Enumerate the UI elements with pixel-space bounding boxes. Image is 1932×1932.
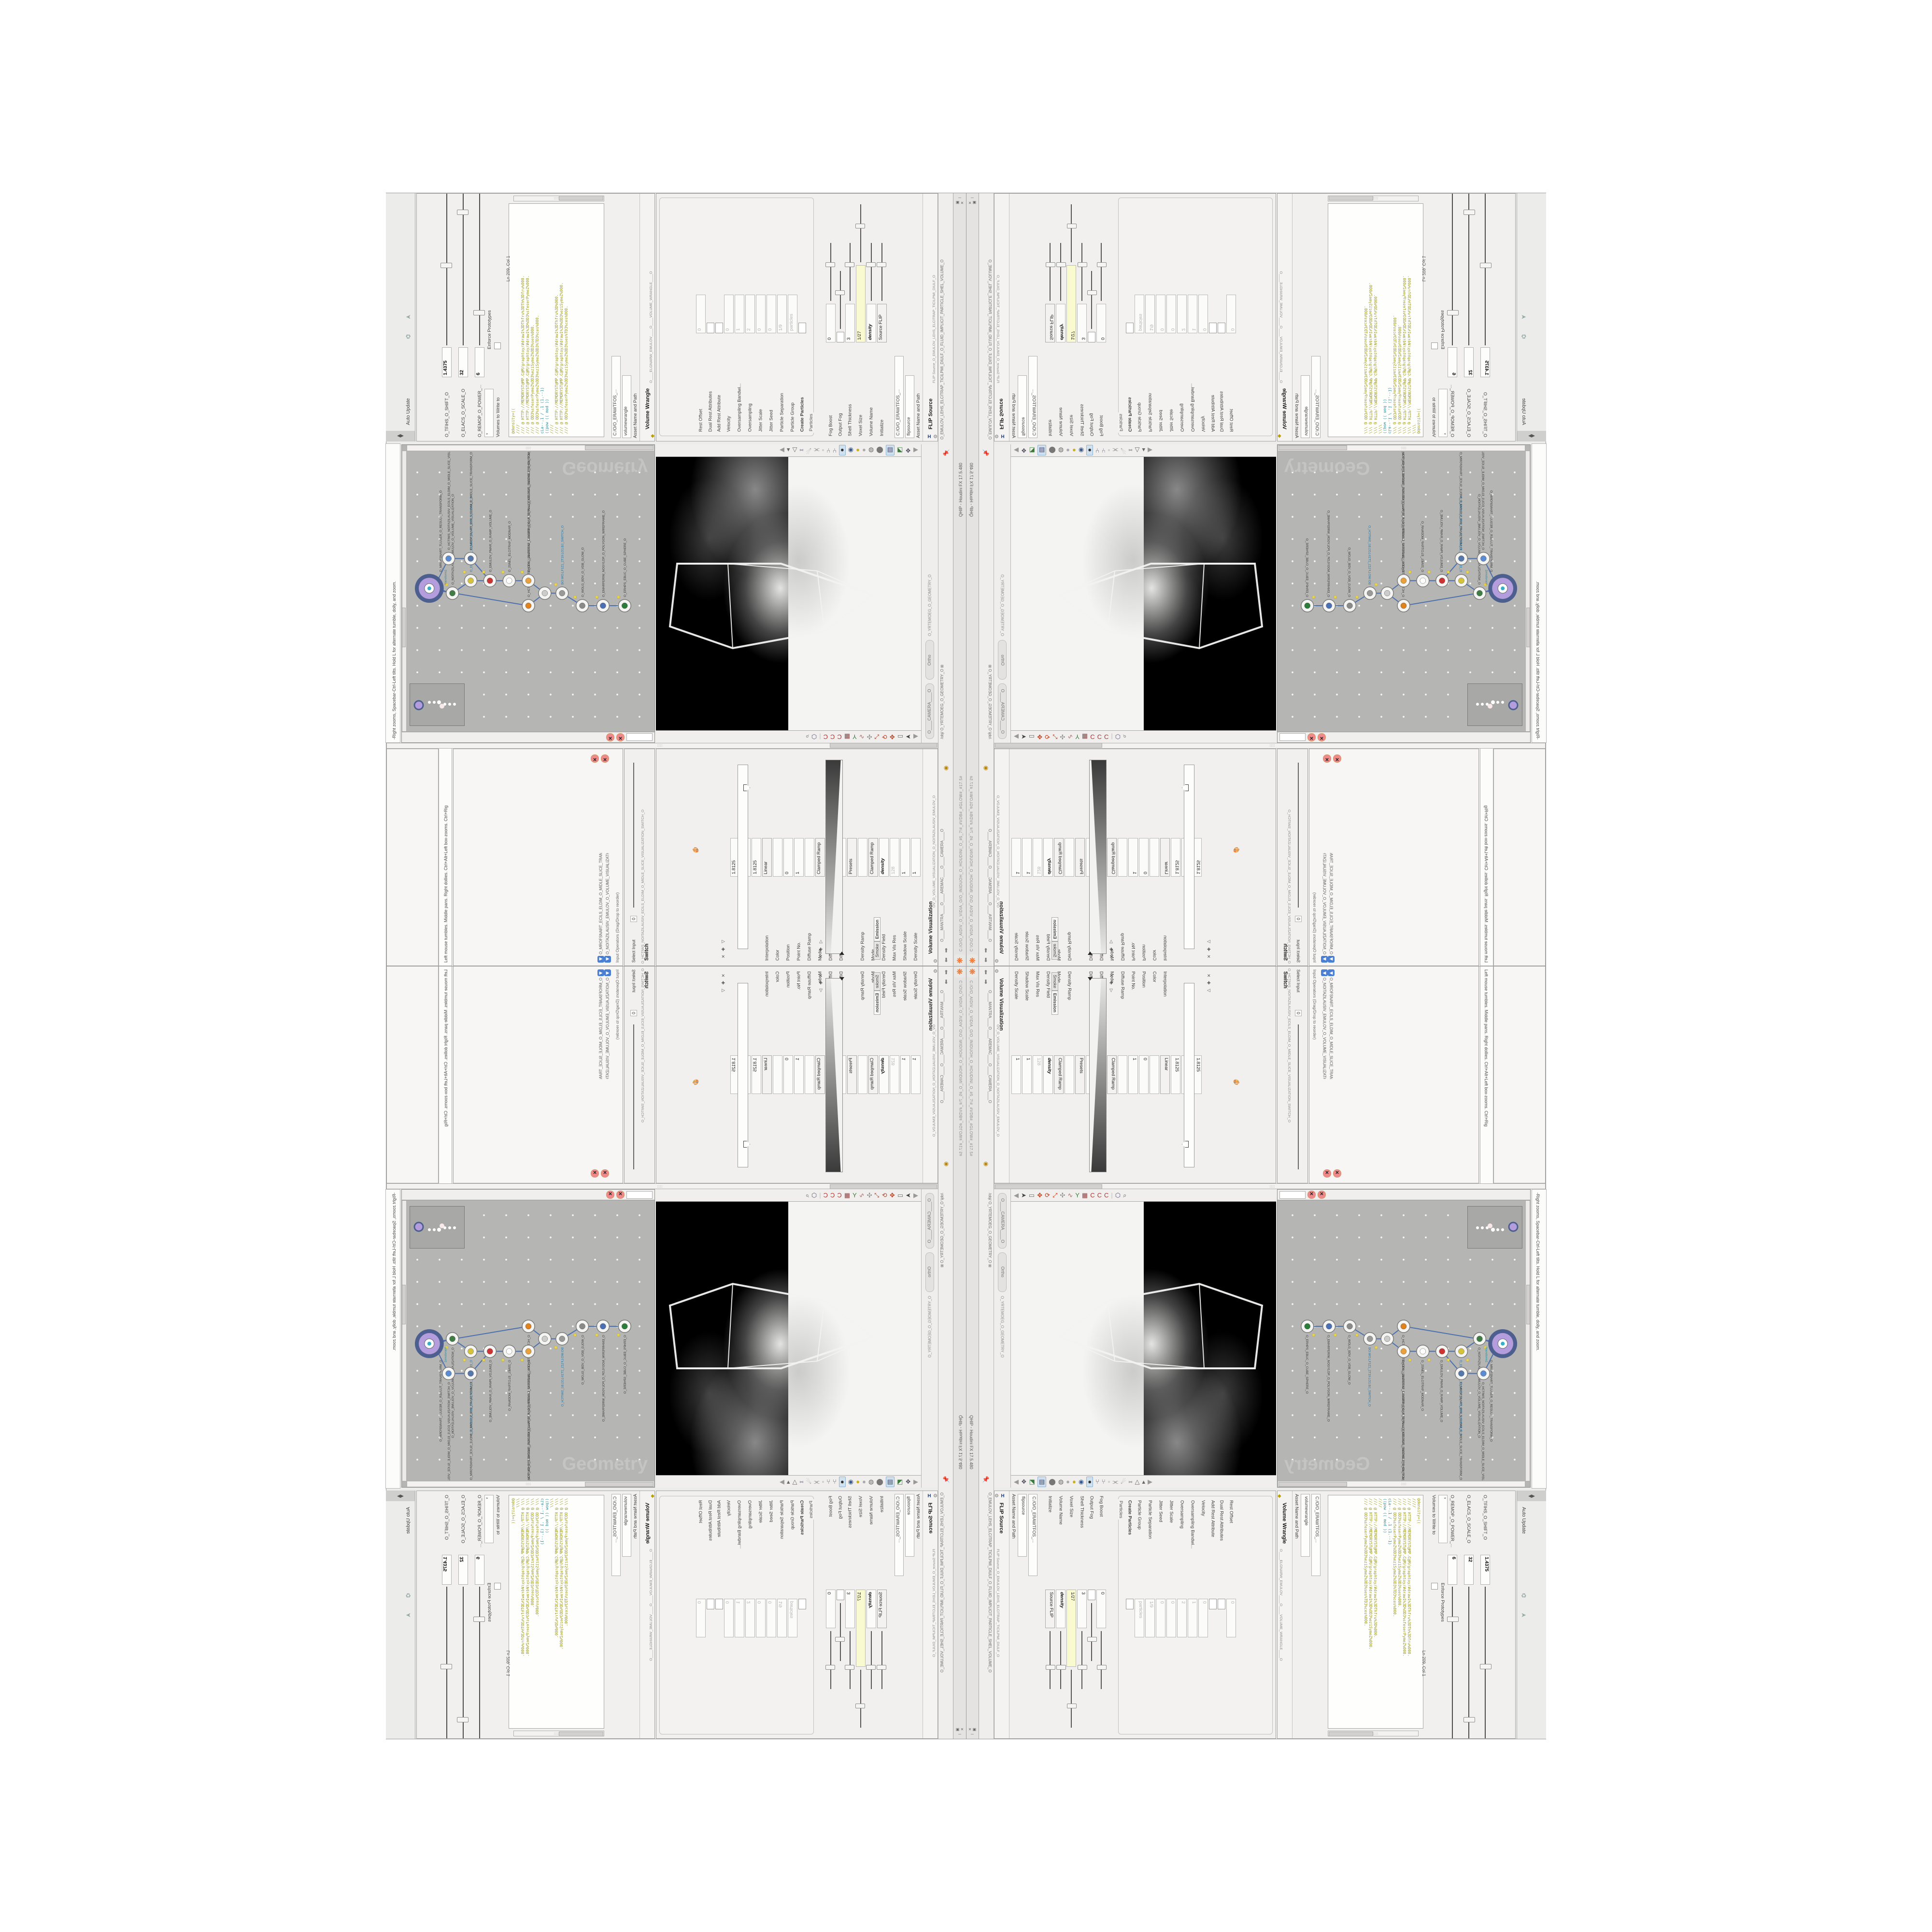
param-value[interactable]: 0	[1226, 295, 1236, 333]
param-value[interactable]: 1	[900, 838, 910, 877]
scene-viewport[interactable]: ◀➤▭✥⟳⤢✣∿Y▦CCC|⬡⌕ ◀❖⬔▤⬤◍●●◉●⑂⑂◦⫘☄⑅△▴▶	[656, 1189, 921, 1488]
param-value[interactable]: Clamped Ramp	[868, 1055, 878, 1094]
lock-camera-icon[interactable]: ▤	[886, 1477, 895, 1487]
particle-param[interactable]: Rest Offset 0	[1226, 295, 1236, 435]
scrollbar-grip[interactable]: ∷∷	[657, 1185, 662, 1189]
wrangle-slider[interactable]: O_REMOP_O_POWER_... 6	[1448, 193, 1457, 437]
slider-value[interactable]: 32	[1464, 1555, 1474, 1585]
volumes-to-write-field[interactable]: *	[484, 389, 494, 437]
spray-icon[interactable]: ⑂	[833, 446, 837, 455]
vv-param[interactable]: Point No. 1	[794, 838, 804, 964]
param-value[interactable]	[707, 1599, 714, 1609]
particle-param[interactable]: Jitter Scale 0	[756, 1497, 766, 1637]
param-slider[interactable]	[830, 243, 831, 301]
tab-band1-label[interactable]: O____MANTRA____O____AREMAC____O____CAMER…	[940, 990, 952, 1154]
wrangle-slider[interactable]: O_ELACS_O_SCALE_O 32	[1464, 193, 1474, 437]
color-wheel-icon[interactable]: 🎨	[1233, 847, 1240, 853]
param-value[interactable]: 1	[1128, 838, 1138, 877]
diffuse-ramp-widget[interactable]	[1184, 765, 1194, 949]
vv-param[interactable]: Density Scale 1	[1011, 838, 1021, 964]
select-input-value[interactable]: 0	[1295, 916, 1302, 922]
flip-path-field[interactable]: C:/O/O_ERAWTFOS_...	[1028, 1494, 1037, 1576]
vv-pane-path[interactable]: OV_O_VOLUME_VISUALIZATION_O_NOITAZILAUSI…	[996, 756, 1000, 908]
vv-param[interactable]: Max Vis Res 128	[1033, 968, 1042, 1094]
param-value[interactable]: 1	[1188, 295, 1197, 333]
switch-path[interactable]: O_HCTIWS_NOITAZILAUSIV_ECILS_ELDIM_O_MID…	[640, 968, 645, 1181]
particle-param[interactable]: Jitter Seed 0	[767, 1497, 776, 1637]
param-value[interactable]: Clamped Ramp	[1054, 1055, 1064, 1094]
slider-value[interactable]: 1.4375	[1480, 1555, 1490, 1585]
wrangle-slider[interactable]: O_REMOP_O_POWER_... 6	[475, 193, 484, 437]
diffuse-ramp-marker[interactable]	[1182, 784, 1189, 791]
lamp-selected-icon[interactable]: ◉	[1079, 446, 1084, 455]
network-path-field[interactable]	[1279, 1191, 1306, 1199]
slider-value[interactable]: 6	[1448, 347, 1457, 377]
param-value[interactable]: 128	[890, 1055, 899, 1094]
param-value[interactable]: 1	[1011, 838, 1021, 877]
close-tab-icon[interactable]: ✕	[606, 1191, 614, 1199]
balloons-icon[interactable]: ⑅	[800, 446, 804, 455]
particle-param[interactable]: Jitter Seed 0	[1156, 295, 1165, 435]
cone-icon[interactable]: △	[793, 446, 797, 455]
particle-param[interactable]: Create Particles	[798, 323, 806, 435]
switch-input-row[interactable]: ◀ O_MROFSNART_ECILS_ELDIM_O_MIDLE_SLICE_…	[597, 853, 604, 963]
smoke-emission-tabs[interactable]: Smoke Emission	[874, 917, 881, 960]
flip-param[interactable]: Fog Boost 0	[1096, 243, 1106, 439]
param-value[interactable]: 1/27	[1066, 1590, 1076, 1667]
param-value[interactable]: 0	[1166, 295, 1176, 333]
vv-pane-path[interactable]: OV_O_VOLUME_VISUALIZATION_O_NOITAZILAUSI…	[996, 1024, 1000, 1176]
slider-track[interactable]	[463, 193, 464, 345]
tab-band1-label[interactable]: O____MANTRA____O____AREMAC____O____CAMER…	[980, 990, 992, 1154]
slider-track[interactable]	[446, 1587, 447, 1739]
param-value[interactable]: Source FLIP	[877, 304, 887, 342]
param-value[interactable]: particles	[1135, 1599, 1144, 1637]
param-value[interactable]	[798, 1599, 806, 1609]
particle-param[interactable]: Jitter Scale 0	[756, 295, 766, 435]
reorder-icon[interactable]: ◀	[597, 956, 604, 963]
down-arrow-icon[interactable]: ⬇	[942, 978, 951, 986]
vv-param[interactable]: Shadow Scale 1	[1022, 968, 1032, 1094]
wrangle-slider[interactable]: O_REMOP_O_POWER_... 6	[1448, 1495, 1457, 1739]
magnet-icon[interactable]: C	[837, 732, 841, 742]
param-value[interactable]: 0	[1166, 1599, 1176, 1637]
flip-path-field[interactable]: C:/O/O_ERAWTFOS_...	[895, 1494, 904, 1576]
delete-point-icon[interactable]: ✕	[721, 953, 725, 959]
code-hscrollbar[interactable]: ∷∷	[1328, 196, 1419, 201]
param-value[interactable]: 0	[1139, 1055, 1149, 1094]
ramp-flip-icon[interactable]: ▽	[1109, 939, 1113, 944]
translate-icon[interactable]: ✥	[1037, 1191, 1042, 1200]
viewport-toolbar-bottom[interactable]: ◀❖⬔▤⬤◍●●◉●⑂⑂◦⫘☄⑅△▴▶	[656, 444, 921, 457]
window-buttons[interactable]: ✕ ▣ ─	[968, 1727, 977, 1737]
network-editor[interactable]: ✕ ✕ Geometry O_ERHPS_EBUC_O_CUBE_SPHERE_…	[401, 1189, 655, 1488]
param-value[interactable]: 0	[1198, 295, 1208, 333]
cone-icon[interactable]: △	[1135, 446, 1139, 455]
up-arrow-icon[interactable]: ⬆	[942, 968, 951, 977]
flip-param[interactable]: Shell Thickness 3	[845, 243, 855, 439]
recycle-icon[interactable]: ♻	[1521, 1592, 1527, 1600]
lamp-selected-icon[interactable]: ◉	[1079, 1477, 1084, 1487]
flip-param[interactable]: Volume Name density	[1056, 243, 1065, 439]
vv-param[interactable]: Presets	[1075, 838, 1085, 964]
slider-value[interactable]: 6	[475, 1555, 484, 1585]
density-ramp-widget[interactable]	[1089, 978, 1107, 1172]
vex-code-editor[interactable]: @density=((/////// @ HTTP://MEMORYST@MP.…	[509, 1495, 604, 1729]
ramp-buttons[interactable]: ✕ ✚ ▽	[819, 973, 823, 993]
delete-point-icon[interactable]: ✕	[819, 953, 823, 959]
auto-update-button[interactable]: Auto Update	[406, 1507, 411, 1534]
param-slider[interactable]	[1101, 243, 1102, 301]
param-value[interactable]	[1065, 1055, 1074, 1094]
tab-band1-label[interactable]: O____MANTRA____O____AREMAC____O____CAMER…	[980, 778, 992, 942]
vv-param[interactable]: Interpolation Linear	[762, 968, 772, 1094]
lamp-selected-icon[interactable]: ◉	[848, 1477, 853, 1487]
render-flipbook-icon[interactable]: ⬡	[811, 1191, 817, 1200]
add-point-icon[interactable]: ✚	[721, 946, 725, 952]
magnet-icon[interactable]: C	[1104, 1191, 1108, 1200]
input-delete-buttons[interactable]: ✕ ✕	[591, 1169, 609, 1178]
tab-band2-label[interactable]: /obj/ O_YRTEMOEG_O_GEOMETRY_O ⊞	[980, 1193, 992, 1463]
param-value[interactable]: 1.8125	[752, 838, 761, 877]
flip-param[interactable]: Voxel Size 1/27	[856, 1493, 866, 1728]
select-cursor-icon[interactable]: ➤	[1021, 1191, 1026, 1200]
network-hscrollbar[interactable]: ∷∷	[1278, 445, 1525, 451]
ramp-arrow-icon[interactable]: ◁	[721, 939, 725, 944]
param-value[interactable]	[707, 323, 714, 333]
code-hscrollbar[interactable]: ∷∷	[513, 1731, 604, 1736]
ramp-arrow-icon[interactable]: ◁	[1207, 939, 1211, 944]
tab-band2-label[interactable]: /obj/ O_YRTEMOEG_O_GEOMETRY_O ⊞	[940, 1193, 952, 1463]
spray2-icon[interactable]: ⑂	[826, 446, 830, 455]
cone-icon[interactable]: △	[1135, 1477, 1139, 1487]
particle-param[interactable]: Add Rest Attribute	[715, 1497, 723, 1609]
viewport-toolbar-top[interactable]: ◀➤▭✥⟳⤢✣∿Y▦CCC|⬡⌕	[1011, 730, 1276, 743]
param-value[interactable]: Clamped Ramp	[868, 838, 878, 877]
key-icon[interactable]: ⫘	[814, 446, 820, 455]
param-value[interactable]: 0	[1226, 1599, 1236, 1637]
slider-track[interactable]	[479, 1587, 480, 1739]
viewport-canvas[interactable]	[1011, 1202, 1276, 1475]
grid-snap-icon[interactable]: ▦	[1082, 1191, 1088, 1200]
snap-axis-icon[interactable]: Y	[1075, 1191, 1080, 1200]
flip-param[interactable]: Fog Boost 0	[826, 1493, 836, 1689]
select-input-value[interactable]: 0	[1295, 1010, 1302, 1016]
cone-flag-icon[interactable]: ▴	[1142, 1477, 1145, 1487]
param-value[interactable]: Clamped Ramp	[815, 838, 825, 877]
select-cursor-icon[interactable]: ➤	[1021, 732, 1026, 742]
vv-param[interactable]: Presets	[1075, 968, 1085, 1094]
box-select-icon[interactable]: ▭	[897, 1191, 903, 1200]
gear-icon[interactable]: ⚙	[994, 433, 999, 439]
delete-point-icon[interactable]: ✕	[1109, 953, 1113, 959]
slider-value[interactable]: 6	[475, 347, 484, 377]
slider-value[interactable]: 1.4375	[442, 1555, 452, 1585]
flip-param[interactable]: Initialize Source FLIP	[877, 1493, 887, 1689]
flip-path-field[interactable]: C:/O/O_ERAWTFOS_...	[895, 356, 904, 438]
param-value[interactable]: 1	[900, 1055, 910, 1094]
add-point-icon[interactable]: ✚	[819, 980, 823, 986]
pose-icon[interactable]: ∿	[1067, 1191, 1073, 1200]
translate-icon[interactable]: ✥	[1037, 732, 1042, 742]
reorder-icon[interactable]: ◀	[597, 969, 604, 976]
particle-param[interactable]: Add Rest Attribute	[1209, 1497, 1217, 1609]
reorder-icon[interactable]: ◀	[1328, 969, 1335, 976]
vv-param[interactable]: Position 0	[1139, 968, 1149, 1094]
bulb-yellow-icon[interactable]: ●	[1072, 446, 1076, 455]
param-value[interactable]: 1	[911, 1055, 921, 1094]
wrangle-asset-field[interactable]: volumewrangle	[622, 375, 631, 438]
switch-input-row[interactable]: ◀ O_NOITAZILAUSIV_EMULOV_O_VOLUME_VISUAL…	[1321, 969, 1328, 1079]
particle-param[interactable]: Oversampling Bandwi... 1	[735, 295, 744, 435]
param-value[interactable]: 1	[911, 838, 921, 877]
network-nav-inset[interactable]	[410, 683, 465, 726]
box-select-icon[interactable]: ▭	[1029, 1191, 1035, 1200]
param-slider[interactable]	[1071, 204, 1072, 262]
particle-param[interactable]: Oversampling 2	[1177, 295, 1187, 435]
flip-param[interactable]: Initialize Source FLIP	[877, 243, 887, 439]
wrangle-asset-field[interactable]: volumewrangle	[1301, 375, 1310, 438]
balloons-icon[interactable]: ⑅	[800, 1477, 804, 1487]
scrollbar-thumb[interactable]	[830, 743, 937, 748]
param-value[interactable]: density	[1056, 304, 1065, 342]
param-value[interactable]: 0	[1139, 838, 1149, 877]
vv-param[interactable]: Density Ramp	[858, 968, 867, 1094]
switch-path[interactable]: O_HCTIWS_NOITAZILAUSIV_ECILS_ELDIM_O_MID…	[1287, 751, 1292, 964]
slider-value[interactable]: 32	[1464, 347, 1474, 377]
param-value[interactable]: 1	[1011, 1055, 1021, 1094]
param-value[interactable]: Clamped Ramp	[1054, 838, 1064, 877]
viewport-toolbar-bottom[interactable]: ◀❖⬔▤⬤◍●●◉●⑂⑂◦⫘☄⑅△▴▶	[1011, 444, 1276, 457]
wrangle-slider[interactable]: O_TFIHS_O_SHIFT_O 1.4375	[442, 1495, 452, 1739]
bulb-yellow-icon[interactable]: ●	[856, 446, 860, 455]
network-hscrollbar[interactable]: ∷∷	[1278, 1481, 1525, 1487]
switch-input-row[interactable]: ◀ O_MROFSNART_ECILS_ELDIM_O_MIDLE_SLICE_…	[1328, 969, 1335, 1079]
magnify-icon[interactable]: ◍	[868, 1477, 874, 1487]
network-editor[interactable]: ✕ ✕ Geometry O_ERHPS_EBUC_O_CUBE_SPHERE_…	[1277, 1189, 1531, 1488]
switch-input-row[interactable]: ◀ O_NOITAZILAUSIV_EMULOV_O_VOLUME_VISUAL…	[604, 969, 611, 1079]
switch-input-row[interactable]: ◀ O_NOITAZILAUSIV_EMULOV_O_VOLUME_VISUAL…	[604, 853, 611, 963]
particle-param[interactable]: Create Particles	[798, 1497, 806, 1609]
particle-param[interactable]: Jitter Scale 0	[1166, 295, 1176, 435]
param-value[interactable]: 128	[1033, 838, 1042, 877]
reorder-icon[interactable]: ◀	[604, 956, 611, 963]
ortho-pill[interactable]: Ortho	[925, 640, 934, 680]
flip-param[interactable]: Output Fog	[1088, 1493, 1095, 1661]
wrangle-pane-path[interactable]: O____ELGNARW_EMULOV____O____VOLUME_WRANG…	[649, 210, 653, 383]
slider-track[interactable]	[1485, 193, 1486, 345]
rotate-icon[interactable]: ⟳	[1045, 732, 1050, 742]
pose-icon[interactable]: ∿	[1067, 732, 1073, 742]
particle-param[interactable]: Particle Separation 1/9	[777, 1497, 787, 1637]
enforce-prototypes-checkbox[interactable]	[1431, 342, 1438, 349]
param-value[interactable]: 128	[890, 838, 899, 877]
diffuse-ramp-widget[interactable]	[738, 765, 748, 949]
camera-pill[interactable]: O____CAMERA____O	[925, 1193, 934, 1249]
select-input-value[interactable]: 0	[630, 916, 637, 922]
particle-param[interactable]: Dual Rest Attributes	[707, 323, 714, 435]
param-value[interactable]: 2	[1177, 295, 1187, 333]
auto-update-button[interactable]: Auto Update	[1521, 1507, 1526, 1534]
close-tab-icon[interactable]: ✕	[616, 1191, 625, 1199]
viewport-canvas[interactable]	[1011, 457, 1276, 730]
param-value[interactable]	[773, 1055, 782, 1094]
spray2-icon[interactable]: ⑂	[1102, 1477, 1106, 1487]
magnet-icon[interactable]: C	[1097, 732, 1102, 742]
param-value[interactable]: 0	[1198, 1599, 1208, 1637]
particle-param[interactable]: Dual Rest Attributes	[1218, 1497, 1225, 1609]
color-wheel-icon[interactable]: 🎨	[692, 847, 699, 853]
translate-icon[interactable]: ✥	[890, 1191, 895, 1200]
snapshot-icon[interactable]: ⬔	[1029, 446, 1035, 455]
vv-param[interactable]: Density Ramp	[1065, 968, 1074, 1094]
viewport-toolbar-top[interactable]: ◀➤▭✥⟳⤢✣∿Y▦CCC|⬡⌕	[656, 1189, 921, 1202]
wrangle-asset-field[interactable]: volumewrangle	[622, 1494, 631, 1557]
particle-param[interactable]: Jitter Scale 0	[1166, 1497, 1176, 1637]
param-value[interactable]	[1126, 323, 1134, 333]
obj-icon[interactable]: ◉	[981, 764, 990, 773]
vv-param[interactable]: Color	[773, 838, 782, 964]
param-slider[interactable]	[1081, 243, 1082, 301]
balloons-icon[interactable]: ⑅	[1129, 446, 1133, 455]
vv-param[interactable]: Point No. 1	[794, 968, 804, 1094]
param-value[interactable]: 2	[745, 295, 755, 333]
select-input-slider[interactable]	[633, 763, 634, 908]
flip-param[interactable]: Output Fog	[837, 1493, 844, 1661]
param-value[interactable]: 1	[794, 1055, 804, 1094]
magnet-icon[interactable]: C	[830, 1191, 835, 1200]
vv-param[interactable]: Point No. 1	[1128, 838, 1138, 964]
sphere-dark-icon[interactable]: ●	[839, 1477, 846, 1487]
flip-param[interactable]: Shell Thickness 3	[1077, 1493, 1087, 1689]
particle-param[interactable]: Particle Group particles	[788, 1497, 797, 1637]
param-value[interactable]: 0	[1096, 304, 1106, 342]
param-slider[interactable]	[1091, 1603, 1092, 1661]
param-value[interactable]	[798, 323, 806, 333]
enforce-prototypes-checkbox[interactable]	[1431, 1583, 1438, 1590]
key-icon[interactable]: ⫘	[1112, 446, 1118, 455]
magnet-icon[interactable]: C	[1104, 732, 1108, 742]
diamond-star-icon[interactable]: ❖	[905, 1477, 911, 1487]
scene-viewport[interactable]: ◀➤▭✥⟳⤢✣∿Y▦CCC|⬡⌕ ◀❖⬔▤⬤◍●●◉●⑂⑂◦⫘☄⑅△▴▶	[1011, 1189, 1276, 1488]
horizontal-scrollbar[interactable]: ∷∷	[994, 743, 1546, 749]
particle-param[interactable]: Particle Group particles	[788, 295, 797, 435]
diffuse-ramp-marker[interactable]	[1182, 1141, 1189, 1148]
vv-param[interactable]: Diffuse Ramp	[805, 838, 814, 964]
flip-param[interactable]: Voxel Size 1/27	[1066, 1493, 1076, 1728]
zoom-icon[interactable]: ⌕	[806, 1191, 809, 1200]
bulb-gray-icon[interactable]: ●	[862, 446, 866, 455]
prev-arrow-icon[interactable]: ◀	[913, 446, 918, 455]
slider-track[interactable]	[1452, 1587, 1453, 1739]
param-value[interactable]: 0	[724, 295, 734, 333]
param-value[interactable]: 1	[1188, 1599, 1197, 1637]
network-nav-inset[interactable]	[1467, 1206, 1522, 1249]
particle-param[interactable]: Oversampling 2	[745, 295, 755, 435]
param-slider[interactable]	[1101, 1631, 1102, 1689]
code-hscrollbar[interactable]: ∷∷	[1328, 1731, 1419, 1736]
param-value[interactable]	[837, 1590, 844, 1600]
tab-emission[interactable]: Emission	[1051, 917, 1058, 941]
sphere-dark-icon[interactable]: ●	[1086, 1477, 1093, 1487]
particle-param[interactable]: Rest Offset 0	[696, 295, 706, 435]
vv-pane-path[interactable]: OV_O_VOLUME_VISUALIZATION_O_NOITAZILAUSI…	[932, 756, 936, 908]
flip-param[interactable]: Output Fog	[837, 271, 844, 439]
input-delete-buttons[interactable]: ✕ ✕	[1323, 1169, 1341, 1178]
volumes-to-write-field[interactable]: *	[1438, 389, 1448, 437]
code-hscrollbar[interactable]: ∷∷	[513, 196, 604, 201]
vv-param[interactable]: Interpolation Linear	[762, 838, 772, 964]
slider-track[interactable]	[463, 1587, 464, 1739]
slider-track[interactable]	[1452, 193, 1453, 345]
diffuse-ramp-widget[interactable]	[738, 983, 748, 1167]
dot-icon[interactable]: ◦	[1108, 1477, 1110, 1487]
param-value[interactable]	[1126, 1599, 1134, 1609]
balloons-icon[interactable]: ⑅	[1129, 1477, 1133, 1487]
add-point-icon[interactable]: ✚	[1207, 980, 1211, 986]
param-value[interactable]: 0	[826, 304, 836, 342]
recycle-icon[interactable]: ♻	[1521, 332, 1527, 340]
diamond-star-icon[interactable]: ❖	[905, 446, 911, 455]
vv-param[interactable]: 1.8125	[1171, 968, 1180, 1094]
tab-band3-label[interactable]: O_EMULOV_LEHS_ELCITRAP_TICILPMI_DIULF_O_…	[980, 213, 992, 440]
vv-param[interactable]: Max Vis Res 128	[890, 968, 899, 1094]
particle-param[interactable]: Dual Rest Attributes	[1218, 323, 1225, 435]
particle-param[interactable]: Create Particles	[1126, 1497, 1134, 1609]
param-slider[interactable]	[1071, 1670, 1072, 1728]
ramp-flip-icon[interactable]: ▽	[1109, 988, 1113, 993]
tab-band3-label[interactable]: O_EMULOV_LEHS_ELCITRAP_TICILPMI_DIULF_O_…	[940, 1492, 952, 1719]
viewport-toolbar-bottom[interactable]: ◀❖⬔▤⬤◍●●◉●⑂⑂◦⫘☄⑅△▴▶	[656, 1475, 921, 1488]
scrollbar-thumb[interactable]	[830, 1184, 937, 1189]
spray-icon[interactable]: ⑂	[833, 1477, 837, 1487]
magnet-icon[interactable]: C	[824, 732, 828, 742]
scrollbar-grip[interactable]: ∷∷	[657, 743, 662, 747]
flip-param[interactable]: Voxel Size 1/27	[856, 204, 866, 439]
wrangle-slider[interactable]: O_TFIHS_O_SHIFT_O 1.4375	[1480, 1495, 1490, 1739]
flip-asset-field[interactable]: flipsource	[1018, 1494, 1027, 1557]
next-arrow-icon[interactable]: ▶	[780, 446, 784, 455]
param-slider[interactable]	[840, 271, 841, 329]
param-value[interactable]: Source FLIP	[1045, 304, 1055, 342]
cone-flag-icon[interactable]: ▴	[787, 446, 790, 455]
box-select-icon[interactable]: ▭	[1029, 732, 1035, 742]
param-slider[interactable]	[881, 1631, 882, 1689]
camera-pill[interactable]: O____CAMERA____O	[998, 1193, 1007, 1249]
snapshot-icon[interactable]: ⬔	[1029, 1477, 1035, 1487]
param-slider[interactable]	[830, 1631, 831, 1689]
bulb-off-icon[interactable]: ⬤	[876, 446, 883, 455]
switch-path[interactable]: O_HCTIWS_NOITAZILAUSIV_ECILS_ELDIM_O_MID…	[640, 751, 645, 964]
pose-icon[interactable]: ∿	[859, 732, 865, 742]
vv-pane-path[interactable]: OV_O_VOLUME_VISUALIZATION_O_NOITAZILAUSI…	[932, 1024, 936, 1176]
param-value[interactable]	[1209, 323, 1217, 333]
render-flipbook-icon[interactable]: ⬡	[1115, 1191, 1121, 1200]
param-value[interactable]: Linear	[1160, 838, 1170, 877]
param-slider[interactable]	[850, 1631, 851, 1689]
param-value[interactable]	[715, 323, 723, 333]
dot-icon[interactable]: ◦	[822, 1477, 824, 1487]
param-value[interactable]	[805, 1055, 814, 1094]
snapshot-icon[interactable]: ⬔	[897, 1477, 903, 1487]
vv-param[interactable]: Position 0	[783, 838, 793, 964]
window-buttons[interactable]: ✕ ▣ ─	[968, 195, 977, 205]
horizontal-scrollbar[interactable]: ∷∷	[386, 1183, 938, 1189]
particle-param[interactable]: Velocity 0	[724, 1497, 734, 1637]
sphere-dark-icon[interactable]: ●	[1086, 445, 1093, 456]
spray-icon[interactable]: ⑂	[1095, 446, 1099, 455]
up-arrow-icon[interactable]: ⬆	[942, 955, 951, 964]
